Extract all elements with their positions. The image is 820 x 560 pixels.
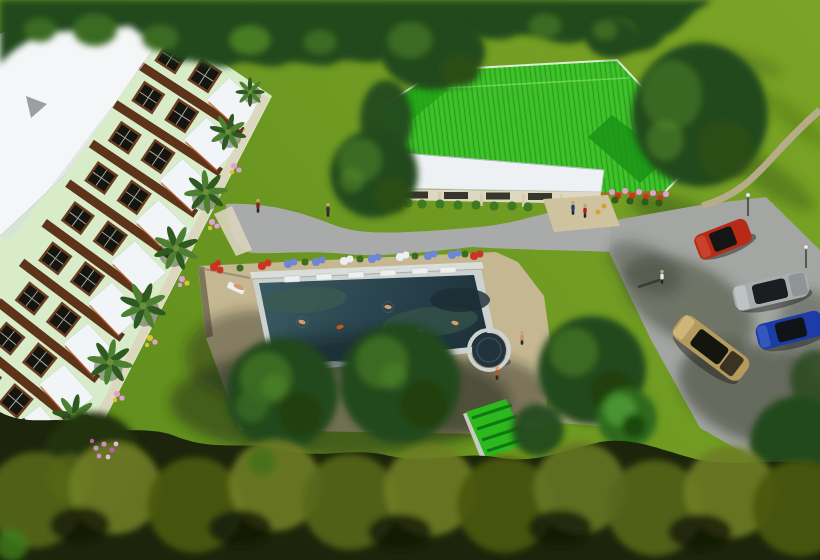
person-on-path	[326, 203, 330, 217]
render-stage	[0, 0, 820, 560]
resort-aerial-rendering	[0, 0, 820, 560]
clubhouse-entry-walk	[543, 195, 620, 232]
person-deck	[520, 331, 524, 345]
person-clubhouse	[571, 201, 575, 215]
spa-circle	[469, 330, 511, 370]
person-clubhouse	[583, 204, 587, 218]
person-deck	[495, 366, 499, 380]
lamp-head	[804, 245, 808, 249]
person-on-path	[256, 199, 260, 213]
person-parking	[660, 270, 664, 284]
tree-cluster-right	[632, 43, 768, 187]
lamp-head	[746, 193, 750, 197]
